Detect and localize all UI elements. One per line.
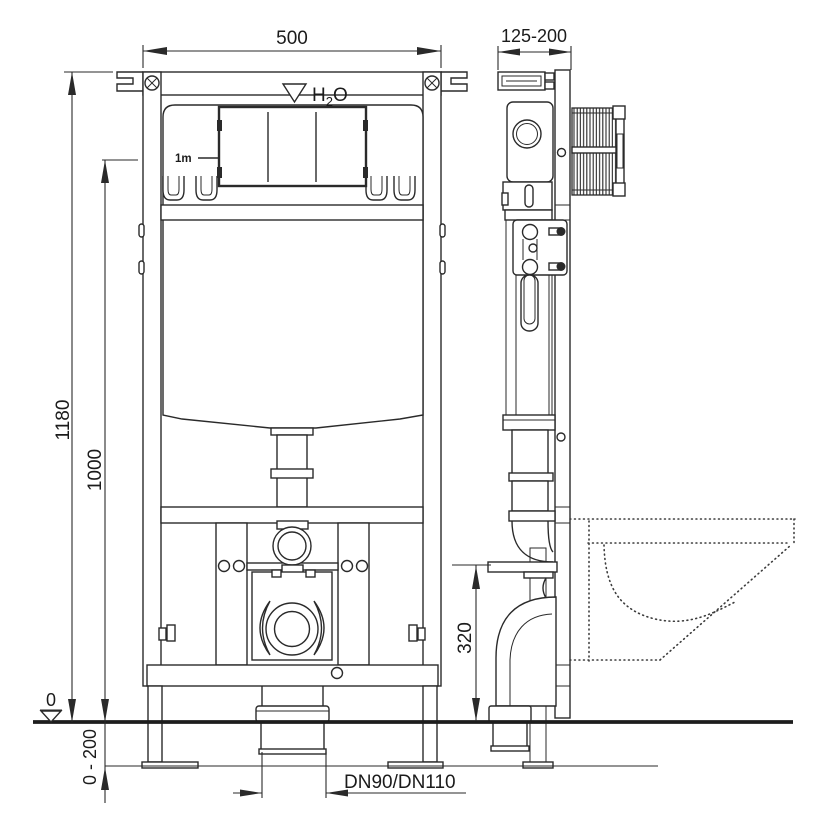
outlet-pipe	[261, 722, 324, 751]
fixing-hole	[357, 561, 368, 572]
drain-size-label: DN90/DN110	[344, 772, 456, 793]
wall-hook-right	[441, 72, 467, 91]
zero-level-marker: 0	[40, 690, 62, 722]
waste-elbow-side	[496, 597, 556, 706]
fill-valve-opening	[513, 120, 541, 148]
dimension-1000-label: 1000	[85, 449, 106, 491]
zero-level-label: 0	[46, 690, 56, 710]
mounting-bracket	[513, 220, 567, 275]
dimension-0-200: 0 - 200	[80, 722, 109, 803]
side-view	[488, 70, 625, 768]
side-foot-plate	[523, 762, 553, 768]
lower-clip-left	[159, 625, 175, 641]
actuator-access-panel	[217, 107, 368, 186]
rail-tab	[440, 224, 445, 237]
dimension-500: 500	[143, 28, 441, 68]
flush-pipe-coupling	[271, 469, 313, 478]
pipe-collar	[503, 415, 555, 430]
outlet-flange-side	[489, 706, 531, 722]
frame-upright-right	[423, 72, 441, 686]
upright-hole	[558, 149, 566, 157]
one-meter-label: 1m	[175, 153, 192, 165]
pipe-coupling	[509, 473, 553, 481]
dimension-500-label: 500	[276, 28, 308, 49]
dimension-depth-label: 125-200	[501, 26, 567, 46]
flush-elbow-side	[512, 521, 553, 562]
flush-elbow-inner	[278, 532, 306, 560]
frame-cross-band	[161, 205, 423, 220]
front-view: H2O 1m	[117, 72, 467, 768]
lower-clip-right	[409, 625, 425, 641]
upright-hole	[557, 433, 565, 441]
foot-left	[148, 686, 162, 762]
rail-hole	[332, 668, 343, 679]
foot-right	[423, 686, 437, 762]
flush-pipe-collar	[271, 428, 313, 435]
dimension-320: 320	[452, 565, 491, 721]
support-channel-left	[216, 523, 247, 665]
waste-bend-inner	[275, 612, 310, 647]
rail-tab	[440, 261, 445, 274]
side-upright	[555, 70, 570, 718]
fixing-hole	[342, 561, 353, 572]
mount-box-tab	[306, 570, 315, 577]
technical-drawing-page: H2O 1m	[0, 0, 830, 830]
wc-bowl-outline	[570, 519, 795, 661]
screw-icon	[145, 76, 159, 90]
fixing-hole	[219, 561, 230, 572]
outlet-pipe-lip	[259, 749, 326, 754]
fixing-hole	[234, 561, 245, 572]
wc-frame-installation-diagram: H2O 1m	[0, 0, 830, 830]
rail-tab	[139, 224, 144, 237]
dimension-1000: 1000	[85, 160, 138, 722]
foot-plate-right	[388, 762, 443, 768]
protection-box	[572, 106, 625, 196]
dimension-1180-label: 1180	[53, 400, 74, 441]
screw-icon	[425, 76, 439, 90]
foot-plate-left	[142, 762, 198, 768]
dimension-320-label: 320	[455, 622, 476, 654]
keyhole-slot	[525, 185, 533, 207]
frame-bottom-rail	[147, 665, 438, 686]
pipe-collar	[509, 511, 555, 521]
dimension-125-200: 125-200	[498, 26, 571, 70]
flush-pipe-side	[512, 430, 548, 474]
wall-anchor-plate	[498, 72, 554, 90]
outlet-flange	[256, 706, 329, 722]
wall-hook-left	[117, 72, 143, 91]
mount-box-tab	[272, 570, 281, 577]
rail-tab	[139, 261, 144, 274]
dimension-floor-range-label: 0 - 200	[80, 729, 100, 785]
support-channel-right	[338, 523, 369, 665]
outlet-pipe-side	[493, 722, 527, 748]
bowl-support-plate	[488, 562, 557, 572]
frame-upright-left	[143, 72, 161, 686]
